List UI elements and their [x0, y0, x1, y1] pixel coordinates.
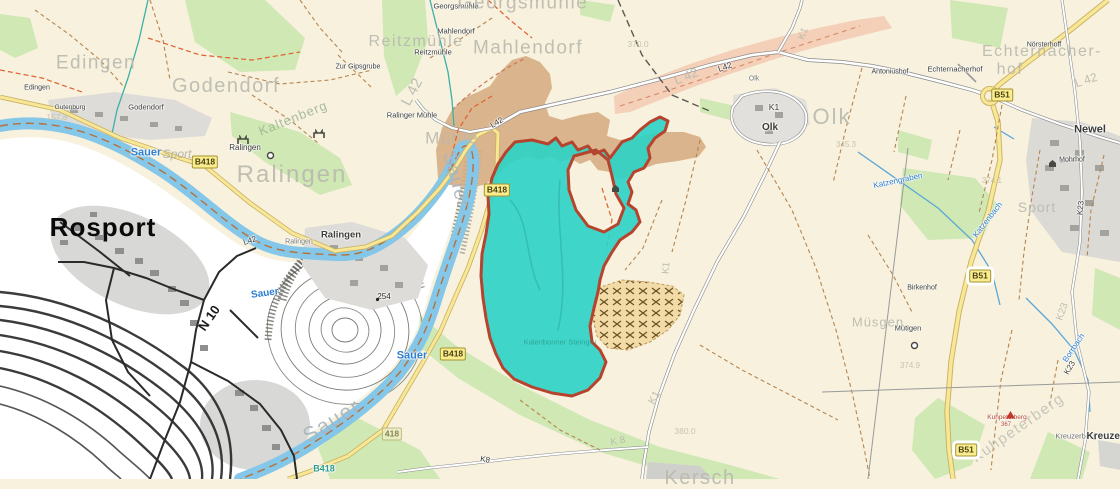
- map-base-layer: [0, 0, 1120, 479]
- map-canvas[interactable]: EdingenGutenburgGodendorfZur GipsgrubeGe…: [0, 0, 1120, 479]
